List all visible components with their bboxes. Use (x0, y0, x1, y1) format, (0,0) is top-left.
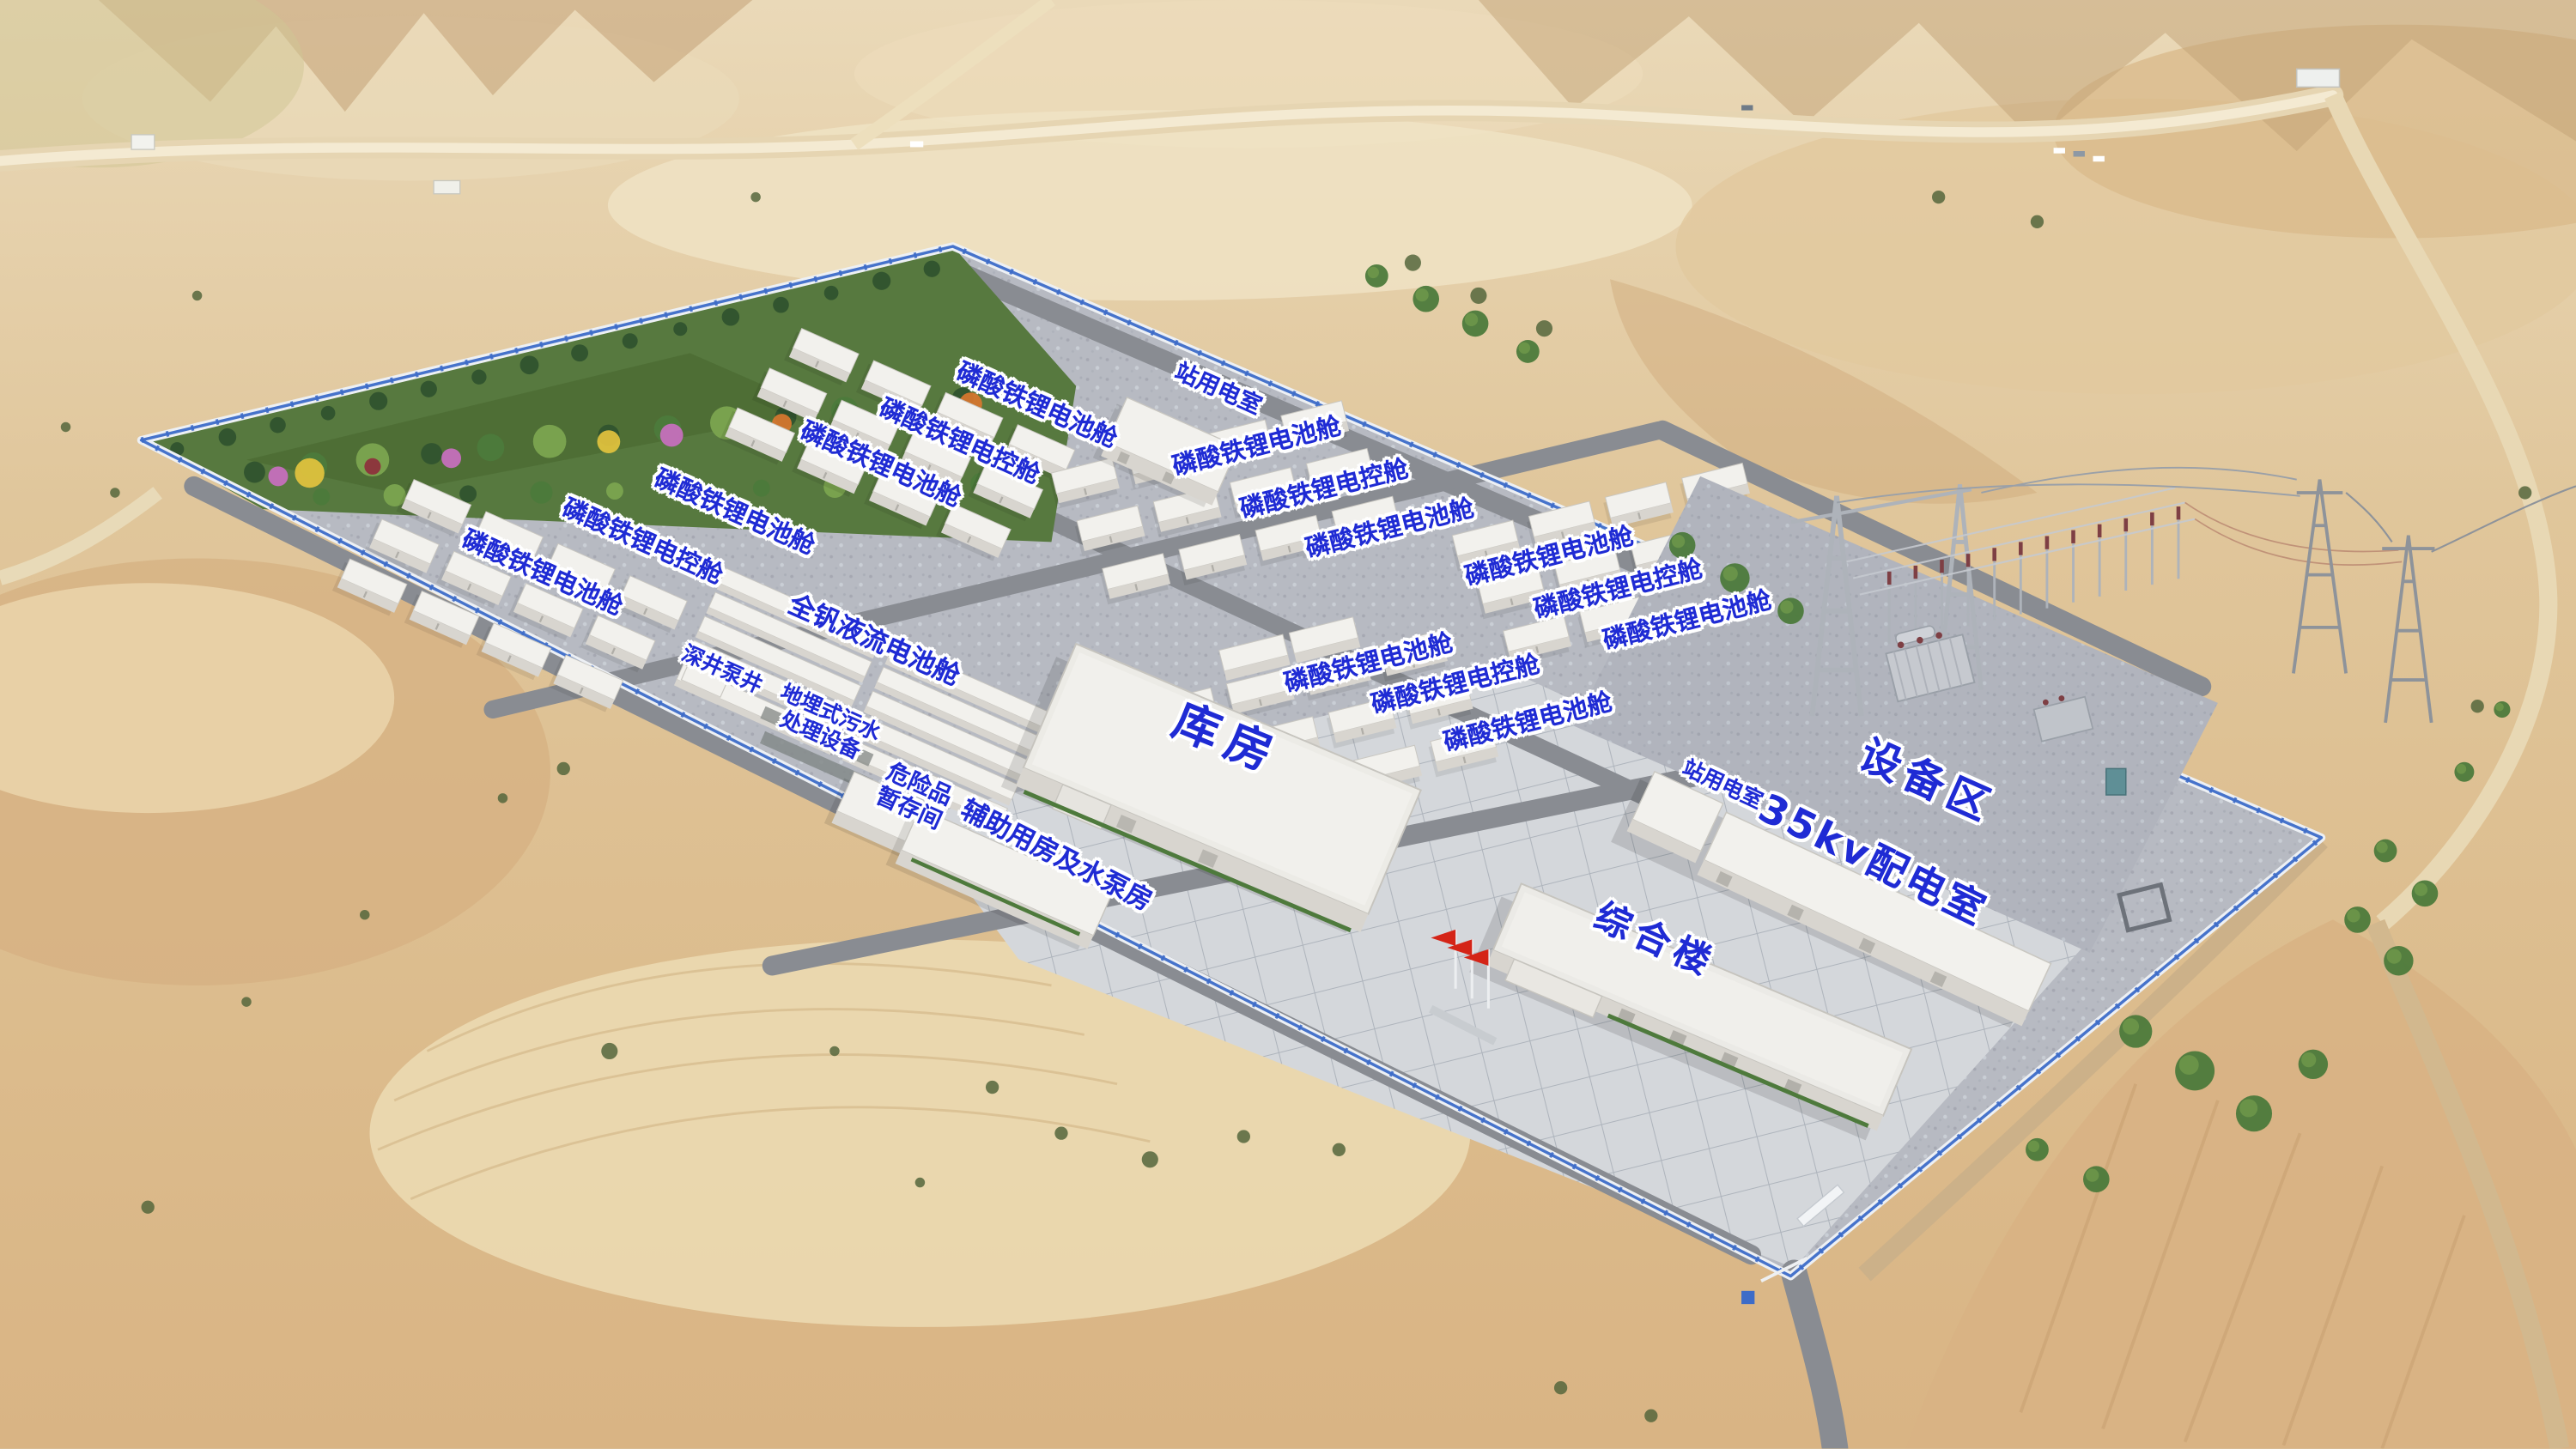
desert-shrub (829, 1046, 839, 1056)
garden-tree (606, 482, 623, 500)
tree-highlight (2028, 1141, 2039, 1152)
desert-shrub (142, 1201, 155, 1214)
tree-highlight (2495, 703, 2504, 712)
garden-tree (677, 478, 699, 500)
desert-shrub (915, 1178, 925, 1187)
garden-pine-tree (369, 392, 387, 410)
distant-building (434, 180, 460, 193)
distant-building (2297, 69, 2340, 87)
garden-pine-tree (471, 370, 486, 385)
tree-highlight (2415, 883, 2427, 896)
garden-pine-tree (872, 272, 890, 290)
garden-pine-tree (824, 286, 839, 300)
desert-shrub (192, 291, 202, 300)
garden-flower-patch (295, 458, 324, 488)
tree-highlight (1723, 567, 1738, 581)
tree-highlight (2387, 949, 2402, 963)
desert-shrub (601, 1043, 617, 1059)
garden-tree (753, 480, 770, 497)
garden-pine-tree (321, 406, 336, 421)
desert-shrub (1405, 255, 1421, 271)
control-cabinet (2106, 768, 2126, 795)
desert-shrub (1142, 1151, 1158, 1167)
tree-highlight (2376, 841, 2387, 852)
garden-pine-tree (773, 297, 789, 313)
desert-shrub (1470, 288, 1486, 304)
garden-pine-tree (270, 417, 286, 433)
desert-shrub (241, 997, 251, 1006)
garden-tree (531, 482, 553, 504)
desert-shrub (750, 192, 760, 202)
desert-shrub (2518, 486, 2531, 499)
tree-highlight (2179, 1055, 2199, 1075)
tree-highlight (1465, 313, 1478, 326)
desert-shrub (1932, 191, 1945, 203)
garden-tree (244, 462, 265, 483)
desert-shrub (1237, 1130, 1250, 1143)
desert-shrub (61, 422, 70, 432)
scene-stage: 磷酸铁锂电池舱磷酸铁锂电控舱磷酸铁锂电池舱站用电室磷酸铁锂电池舱磷酸铁锂电控舱磷… (0, 0, 2576, 1448)
garden-tree (421, 443, 442, 464)
tree-highlight (2239, 1099, 2257, 1117)
garden-flower-patch (660, 424, 683, 447)
garden-pine-tree (924, 261, 940, 277)
garden-flower-patch (441, 448, 461, 468)
garden-tree (313, 488, 330, 506)
garden-pine-tree (722, 308, 740, 326)
garden-flower-patch (597, 430, 620, 453)
garden-pine-tree (673, 322, 687, 336)
tree-highlight (1519, 343, 1530, 354)
tree-highlight (2123, 1018, 2139, 1034)
desert-shrub (1554, 1381, 1567, 1394)
guard-booth (1741, 1291, 1754, 1304)
tree-highlight (2457, 764, 2466, 773)
desert-shrub (2031, 215, 2044, 228)
desert-shrub (1333, 1143, 1346, 1156)
desert-shrub (1054, 1126, 1067, 1139)
desert-shrub (2471, 700, 2484, 712)
tree-highlight (1415, 288, 1428, 301)
tree-highlight (1672, 535, 1685, 548)
desert-shrub (1536, 320, 1552, 336)
tree-highlight (1780, 600, 1793, 613)
distant-building (131, 135, 155, 149)
garden-pine-tree (571, 344, 588, 361)
garden-tree (477, 433, 505, 461)
garden-tree (533, 425, 567, 458)
garden-flower-patch (268, 466, 288, 486)
tree-highlight (2347, 909, 2360, 922)
tree-highlight (2301, 1052, 2316, 1067)
desert-shrub (986, 1081, 999, 1094)
desert-shrub (360, 910, 369, 919)
garden-pine-tree (520, 355, 539, 374)
tree-highlight (2086, 1168, 2099, 1181)
garden-pine-tree (421, 381, 437, 397)
aerial-rendering: 磷酸铁锂电池舱磷酸铁锂电控舱磷酸铁锂电池舱站用电室磷酸铁锂电池舱磷酸铁锂电控舱磷… (0, 0, 2576, 1449)
tree-highlight (1368, 267, 1379, 278)
desert-shrub (110, 488, 119, 497)
garden-tree (459, 485, 477, 502)
garden-flower-patch (364, 458, 380, 475)
garden-pine-tree (623, 333, 638, 349)
desert-shrub (1644, 1410, 1657, 1422)
scene-svg (0, 0, 2576, 1448)
desert-shrub (557, 762, 570, 775)
garden-pine-tree (219, 428, 237, 446)
desert-shrub (498, 793, 507, 803)
